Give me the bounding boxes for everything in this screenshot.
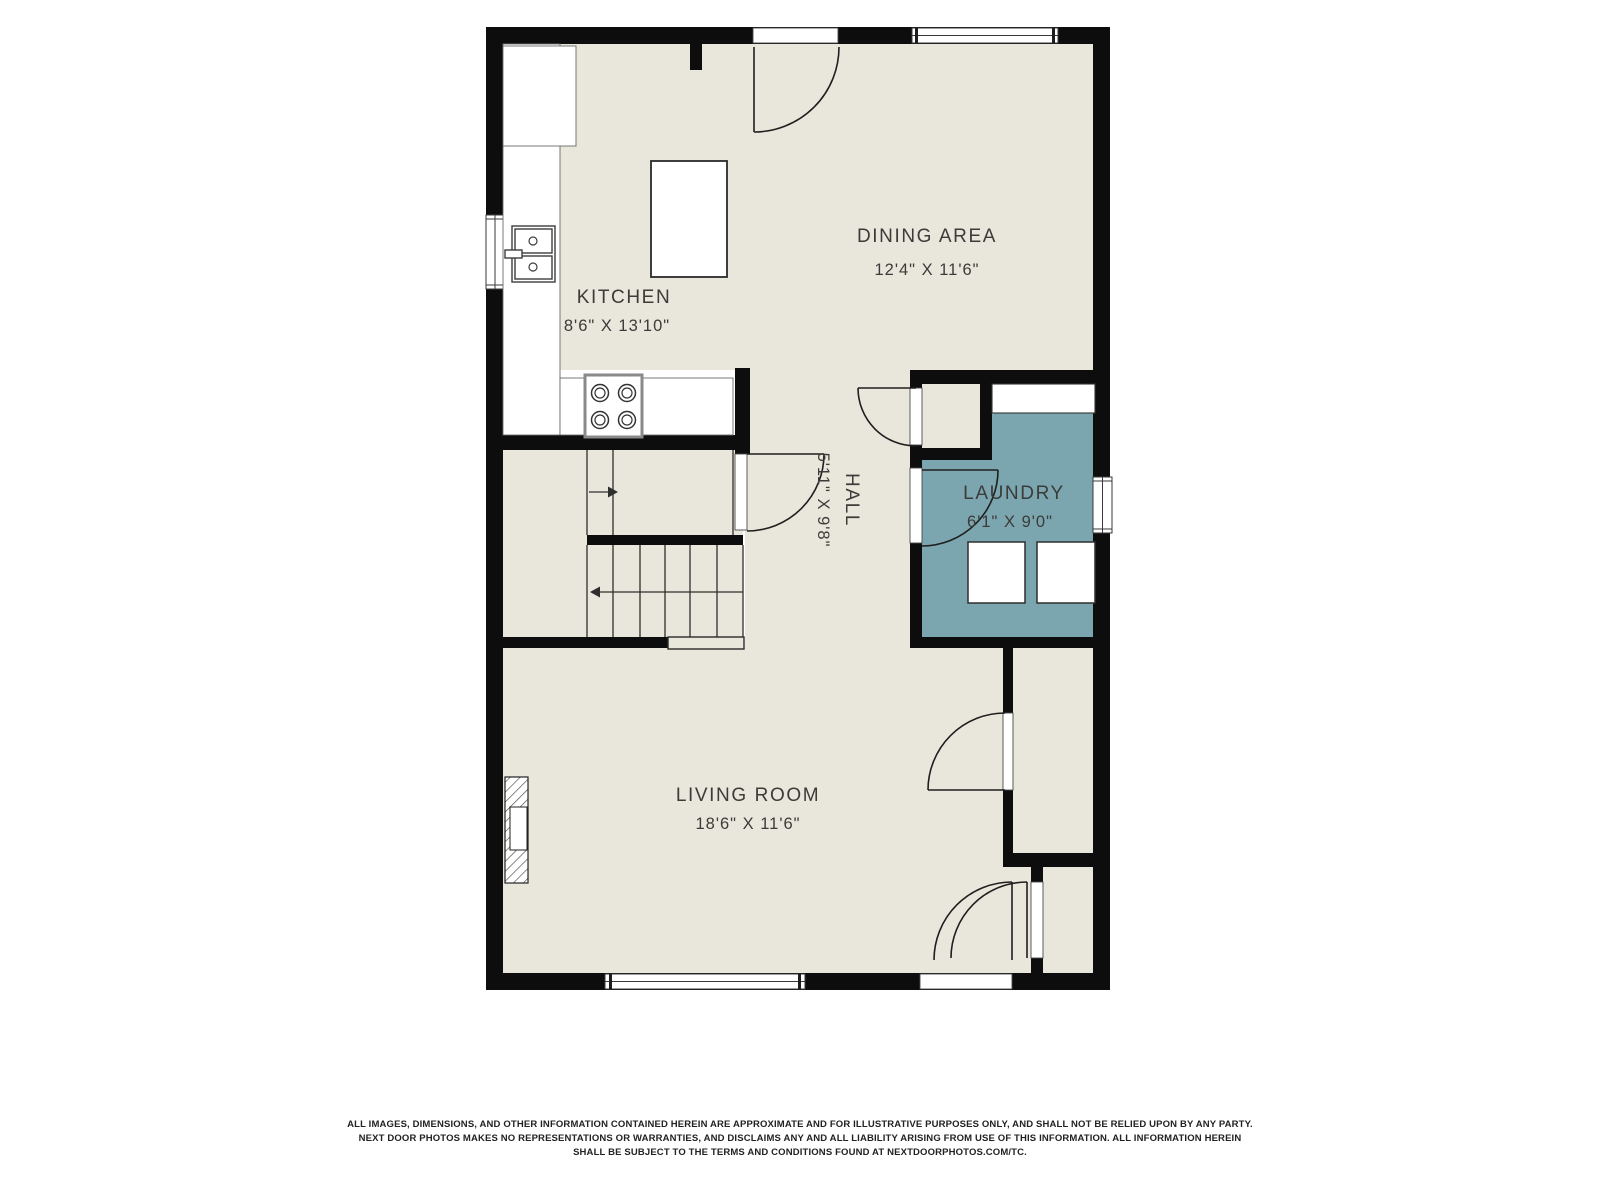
label-dining-name: DINING AREA — [857, 226, 997, 247]
wall-right-divider — [1003, 853, 1093, 867]
closet-door-opening — [910, 388, 922, 445]
wall-laundry-top — [910, 370, 1110, 384]
label-laundry-dims: 6'1" X 9'0" — [967, 513, 1053, 531]
label-living-name: LIVING ROOM — [676, 785, 820, 806]
closet-floor — [922, 384, 980, 448]
wall-laundry-bottom — [910, 637, 1110, 648]
laundry-counter — [992, 384, 1095, 413]
wall-entry-stub — [690, 44, 702, 70]
disclaimer-line-2: NEXT DOOR PHOTOS MAKES NO REPRESENTATION… — [0, 1132, 1600, 1146]
label-hall-dims: 5'11" X 9'8" — [814, 453, 832, 548]
kitchen-island-icon — [651, 161, 727, 277]
hall-door-opening — [735, 454, 747, 530]
stair-landing — [668, 637, 744, 649]
lower-right-door-opening — [1031, 882, 1043, 958]
room-upper-right-floor — [1013, 648, 1093, 853]
label-hall-name: HALL — [841, 473, 862, 527]
entry-threshold-bottom — [920, 974, 1012, 989]
sink-icon — [505, 226, 555, 282]
washer-icon — [968, 542, 1025, 603]
fireplace-icon — [505, 777, 528, 883]
label-living-dims: 18'6" X 11'6" — [695, 815, 800, 833]
entry-threshold-top — [753, 28, 838, 43]
disclaimer-line-3: SHALL BE SUBJECT TO THE TERMS AND CONDIT… — [0, 1146, 1600, 1160]
floor-plan-page: KITCHEN 8'6" X 13'10" DINING AREA 12'4" … — [0, 0, 1600, 1200]
wall-closet-bottom — [910, 448, 992, 460]
label-kitchen-name: KITCHEN — [577, 287, 672, 308]
refrigerator-icon — [503, 46, 576, 146]
wall-stair-mid — [587, 535, 743, 545]
label-laundry-name: LAUNDRY — [963, 483, 1065, 504]
wall-closet-right — [980, 370, 992, 460]
label-dining-dims: 12'4" X 11'6" — [874, 261, 979, 279]
dryer-icon — [1037, 542, 1095, 603]
disclaimer-line-1: ALL IMAGES, DIMENSIONS, AND OTHER INFORM… — [0, 1118, 1600, 1132]
wall-left — [486, 27, 503, 990]
room-lower-right-floor — [1043, 867, 1093, 973]
wall-hall-living — [495, 637, 668, 648]
floor-plan: KITCHEN 8'6" X 13'10" DINING AREA 12'4" … — [0, 0, 1600, 1200]
wall-hall-door-stub — [735, 368, 750, 454]
stove-icon — [585, 375, 642, 437]
upper-right-door-opening — [1003, 713, 1013, 790]
disclaimer: ALL IMAGES, DIMENSIONS, AND OTHER INFORM… — [0, 1118, 1600, 1159]
room-living-floor — [503, 648, 1003, 973]
label-kitchen-dims: 8'6" X 13'10" — [564, 317, 670, 335]
laundry-door-opening — [910, 468, 922, 543]
